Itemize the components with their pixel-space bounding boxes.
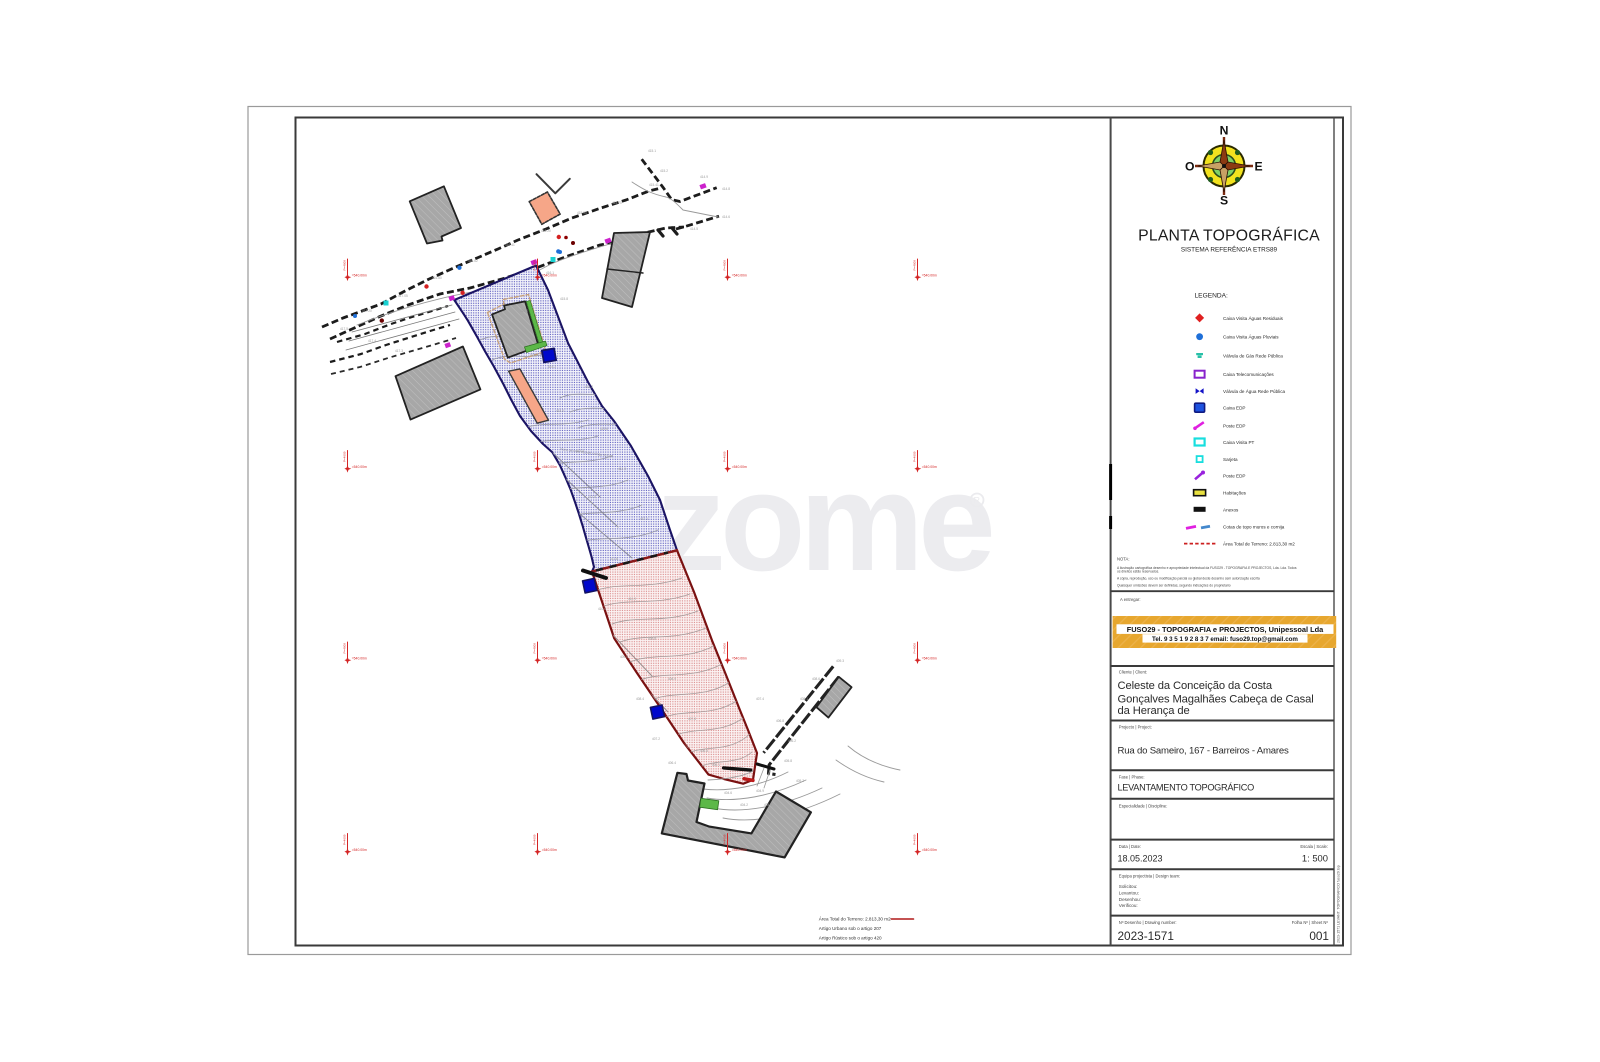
svg-text:406.8: 406.8 xyxy=(700,749,708,753)
svg-text:=540.00m: =540.00m xyxy=(352,465,367,469)
svg-text:18.05.2023: 18.05.2023 xyxy=(1118,854,1163,864)
svg-text:2023-1571: 2023-1571 xyxy=(1118,929,1174,943)
svg-text:P=4609: P=4609 xyxy=(343,451,347,462)
svg-text:P=4609: P=4609 xyxy=(533,643,537,654)
svg-text:NOTA:: NOTA: xyxy=(1117,557,1130,562)
svg-text:415.8: 415.8 xyxy=(560,297,568,301)
svg-text:Artigo Rústico sob o artigo 42: Artigo Rústico sob o artigo 420 xyxy=(819,936,882,941)
svg-text:=540.00m: =540.00m xyxy=(922,274,937,278)
svg-text:411.8: 411.8 xyxy=(610,557,618,561)
svg-text:417.20: 417.20 xyxy=(362,309,372,313)
svg-text:=540.00m: =540.00m xyxy=(732,465,747,469)
svg-text:417.4: 417.4 xyxy=(368,339,376,343)
svg-text:409.8: 409.8 xyxy=(648,637,656,641)
svg-text:408.6: 408.6 xyxy=(812,677,820,681)
svg-text:os direitos estão reservados.: os direitos estão reservados. xyxy=(1117,570,1159,574)
svg-text:O: O xyxy=(1185,160,1194,174)
svg-text:416.20: 416.20 xyxy=(541,229,551,233)
svg-text:404.2: 404.2 xyxy=(740,803,748,807)
svg-text:P=4609: P=4609 xyxy=(343,260,347,271)
svg-text:zome: zome xyxy=(656,443,992,600)
svg-text:408.9: 408.9 xyxy=(668,677,676,681)
svg-text:R: R xyxy=(974,496,981,506)
svg-text:415.1: 415.1 xyxy=(648,149,656,153)
svg-text:415.95: 415.95 xyxy=(577,211,587,215)
svg-text:409.5: 409.5 xyxy=(620,655,628,659)
svg-text:SISTEMA REFERÊNCIA ETRS89: SISTEMA REFERÊNCIA ETRS89 xyxy=(1181,245,1278,254)
svg-text:414.8: 414.8 xyxy=(722,187,730,191)
svg-text:=540.00m: =540.00m xyxy=(732,657,747,661)
svg-text:=540.00m: =540.00m xyxy=(352,848,367,852)
svg-text:=540.00m: =540.00m xyxy=(542,657,557,661)
svg-text:FUSO29 - TOPOGRAFIA e PROJECT: FUSO29 - TOPOGRAFIA e PROJECTOS, Unipess… xyxy=(1127,625,1324,634)
svg-text:=540.00m: =540.00m xyxy=(732,274,747,278)
svg-text:406.4: 406.4 xyxy=(668,761,676,765)
svg-text:414.9: 414.9 xyxy=(700,175,708,179)
svg-text:P=4609: P=4609 xyxy=(723,451,727,462)
svg-text:409.3: 409.3 xyxy=(836,659,844,663)
svg-text:Gonçalves Magalhães Cabeça de: Gonçalves Magalhães Cabeça de Casal xyxy=(1118,694,1314,706)
svg-text:414.6: 414.6 xyxy=(722,215,730,219)
svg-text:Equipa projectista | Design te: Equipa projectista | Design team: xyxy=(1119,874,1180,879)
svg-text:Data | Date:: Data | Date: xyxy=(1119,844,1141,849)
svg-text:Folha Nº | Sheet Nº: Folha Nº | Sheet Nº xyxy=(1292,920,1329,925)
svg-text:406.2: 406.2 xyxy=(788,739,796,743)
svg-text:Cotas de topo muros e cornija: Cotas de topo muros e cornija xyxy=(1223,524,1285,529)
svg-text:415.2: 415.2 xyxy=(548,365,556,369)
svg-text:P=4609: P=4609 xyxy=(533,260,537,271)
svg-text:Área Total do Terreno: 2.813,3: Área Total do Terreno: 2.813,30 m2 xyxy=(819,916,891,922)
svg-text:416.0: 416.0 xyxy=(520,309,528,313)
svg-text:P=4609: P=4609 xyxy=(723,643,727,654)
svg-text:1: 500: 1: 500 xyxy=(1302,853,1328,864)
svg-text:416.80: 416.80 xyxy=(432,276,442,280)
svg-text:407.2: 407.2 xyxy=(652,737,660,741)
svg-text:N: N xyxy=(1220,124,1229,138)
svg-text:E: E xyxy=(1255,160,1263,174)
svg-text:Caixa Visita Águas Pluviais: Caixa Visita Águas Pluviais xyxy=(1223,334,1279,340)
svg-text:P=4609: P=4609 xyxy=(723,834,727,845)
svg-text:408.1: 408.1 xyxy=(800,697,808,701)
svg-text:404.6: 404.6 xyxy=(724,791,732,795)
svg-text:410.6: 410.6 xyxy=(598,607,606,611)
svg-text:P=4609: P=4609 xyxy=(913,260,917,271)
svg-text:da Herança de: da Herança de xyxy=(1118,705,1190,717)
svg-text:Quaisquer omissões devem ser d: Quaisquer omissões devem ser definidas, … xyxy=(1117,584,1231,588)
svg-text:Celeste da Conceição da Costa: Celeste da Conceição da Costa xyxy=(1118,680,1273,692)
svg-text:405.2: 405.2 xyxy=(796,779,804,783)
svg-text:416.62: 416.62 xyxy=(468,259,478,263)
svg-text:A cópia, reprodução, uso ou mo: A cópia, reprodução, uso ou modificação … xyxy=(1117,577,1260,581)
svg-text:P=4609: P=4609 xyxy=(913,643,917,654)
svg-text:412.9: 412.9 xyxy=(618,467,626,471)
svg-text:=540.00m: =540.00m xyxy=(922,848,937,852)
svg-text:P=4609: P=4609 xyxy=(343,834,347,845)
svg-text:=540.00m: =540.00m xyxy=(922,657,937,661)
svg-text:Caixa Visita Águas Residuais: Caixa Visita Águas Residuais xyxy=(1223,315,1284,321)
svg-text:=540.00m: =540.00m xyxy=(922,465,937,469)
svg-text:Válvula de Gás Rede Pública: Válvula de Gás Rede Pública xyxy=(1223,353,1283,358)
svg-text:413.6: 413.6 xyxy=(600,427,608,431)
svg-text:Artigo Urbano sob o artigo 207: Artigo Urbano sob o artigo 207 xyxy=(819,926,882,931)
svg-text:Poste EDP: Poste EDP xyxy=(1223,423,1245,428)
svg-text:404.9: 404.9 xyxy=(756,789,764,793)
svg-text:P=4609: P=4609 xyxy=(913,451,917,462)
svg-text:P=4609: P=4609 xyxy=(343,643,347,654)
svg-text:Solicitou:: Solicitou: xyxy=(1119,884,1138,889)
svg-text:408.4: 408.4 xyxy=(636,697,644,701)
svg-text:Área Total de Terreno: 2.813,3: Área Total de Terreno: 2.813,30 m2 xyxy=(1223,541,1295,547)
svg-text:001: 001 xyxy=(1309,929,1329,943)
svg-text:Desenhou:: Desenhou: xyxy=(1119,897,1141,902)
svg-text:=540.00m: =540.00m xyxy=(352,274,367,278)
svg-text:414.5: 414.5 xyxy=(690,227,698,231)
svg-text:Caixa Telecomunicações: Caixa Telecomunicações xyxy=(1223,372,1274,377)
svg-text:P=4609: P=4609 xyxy=(913,834,917,845)
svg-text:P=4609: P=4609 xyxy=(723,260,727,271)
svg-text:Cliente | Client:: Cliente | Client: xyxy=(1119,670,1147,675)
svg-text:=540.00m: =540.00m xyxy=(352,657,367,661)
svg-text:407.8: 407.8 xyxy=(688,717,696,721)
svg-text:A entregar:: A entregar: xyxy=(1120,597,1141,602)
svg-text:Rua do Sameiro, 167 - Barreiro: Rua do Sameiro, 167 - Barreiros - Amares xyxy=(1118,746,1290,757)
svg-text:416.41: 416.41 xyxy=(505,243,515,247)
svg-text:Especialidade | Discipline:: Especialidade | Discipline: xyxy=(1119,804,1168,809)
svg-text:415.70: 415.70 xyxy=(612,201,622,205)
svg-text:PLANTA TOPOGRÁFICA: PLANTA TOPOGRÁFICA xyxy=(1138,226,1320,245)
svg-text:Habitações: Habitações xyxy=(1223,491,1247,496)
svg-text:=540.00m: =540.00m xyxy=(542,274,557,278)
svg-text:Sarjeta: Sarjeta xyxy=(1223,457,1238,462)
svg-text:Poste EDP: Poste EDP xyxy=(1223,473,1245,478)
svg-text:Escala | Scale:: Escala | Scale: xyxy=(1300,844,1328,849)
svg-text:414.0: 414.0 xyxy=(556,409,564,413)
svg-text:405.8: 405.8 xyxy=(784,759,792,763)
svg-text:Caixa EDP: Caixa EDP xyxy=(1223,406,1245,411)
svg-text:=540.00m: =540.00m xyxy=(542,848,557,852)
svg-text:415.2: 415.2 xyxy=(660,169,668,173)
svg-text:412.1: 412.1 xyxy=(640,517,648,521)
svg-text:Válvula de Água Rede Pública: Válvula de Água Rede Pública xyxy=(1223,388,1286,394)
svg-text:P=4609: P=4609 xyxy=(533,451,537,462)
svg-text:417.05: 417.05 xyxy=(398,294,408,298)
svg-text:Fase | Phase:: Fase | Phase: xyxy=(1119,774,1145,779)
svg-text:407.4: 407.4 xyxy=(756,697,764,701)
svg-text:2023-1571 LEVANT. TOPOGRAFICO: 2023-1571 LEVANT. TOPOGRAFICO fuso29.top xyxy=(1337,865,1341,943)
svg-text:415.6: 415.6 xyxy=(530,353,538,357)
svg-text:412.8: 412.8 xyxy=(588,495,596,499)
svg-text:406.8: 406.8 xyxy=(776,719,784,723)
svg-text:410.9: 410.9 xyxy=(628,597,636,601)
svg-text:Levantou:: Levantou: xyxy=(1119,890,1139,895)
svg-text:S: S xyxy=(1220,194,1228,208)
svg-text:LEGENDA:: LEGENDA: xyxy=(1195,293,1229,300)
svg-text:Tel. 9 3 5 1 9 2 8 3 7 email:: Tel. 9 3 5 1 9 2 8 3 7 email: fuso29.top… xyxy=(1152,636,1298,643)
svg-text:Projecto | Project:: Projecto | Project: xyxy=(1119,725,1152,730)
svg-text:Verificou:: Verificou: xyxy=(1119,903,1138,908)
svg-text:=540.00m: =540.00m xyxy=(542,465,557,469)
svg-text:404.0: 404.0 xyxy=(764,803,772,807)
svg-text:414.2: 414.2 xyxy=(585,385,593,389)
svg-text:=540.00m: =540.00m xyxy=(732,848,747,852)
svg-text:Anexos: Anexos xyxy=(1223,507,1239,512)
svg-text:P=4609: P=4609 xyxy=(533,834,537,845)
svg-text:417.3: 417.3 xyxy=(395,349,403,353)
svg-text:LEVANTAMENTO TOPOGRÁFICO: LEVANTAMENTO TOPOGRÁFICO xyxy=(1118,783,1255,793)
svg-text:417.5: 417.5 xyxy=(340,327,348,331)
svg-text:406.1: 406.1 xyxy=(712,763,720,767)
svg-text:Nº Desenho | Drawing number:: Nº Desenho | Drawing number: xyxy=(1119,920,1177,925)
svg-text:Caixa Visita PT: Caixa Visita PT xyxy=(1223,440,1255,445)
svg-text:415.41: 415.41 xyxy=(649,183,659,187)
